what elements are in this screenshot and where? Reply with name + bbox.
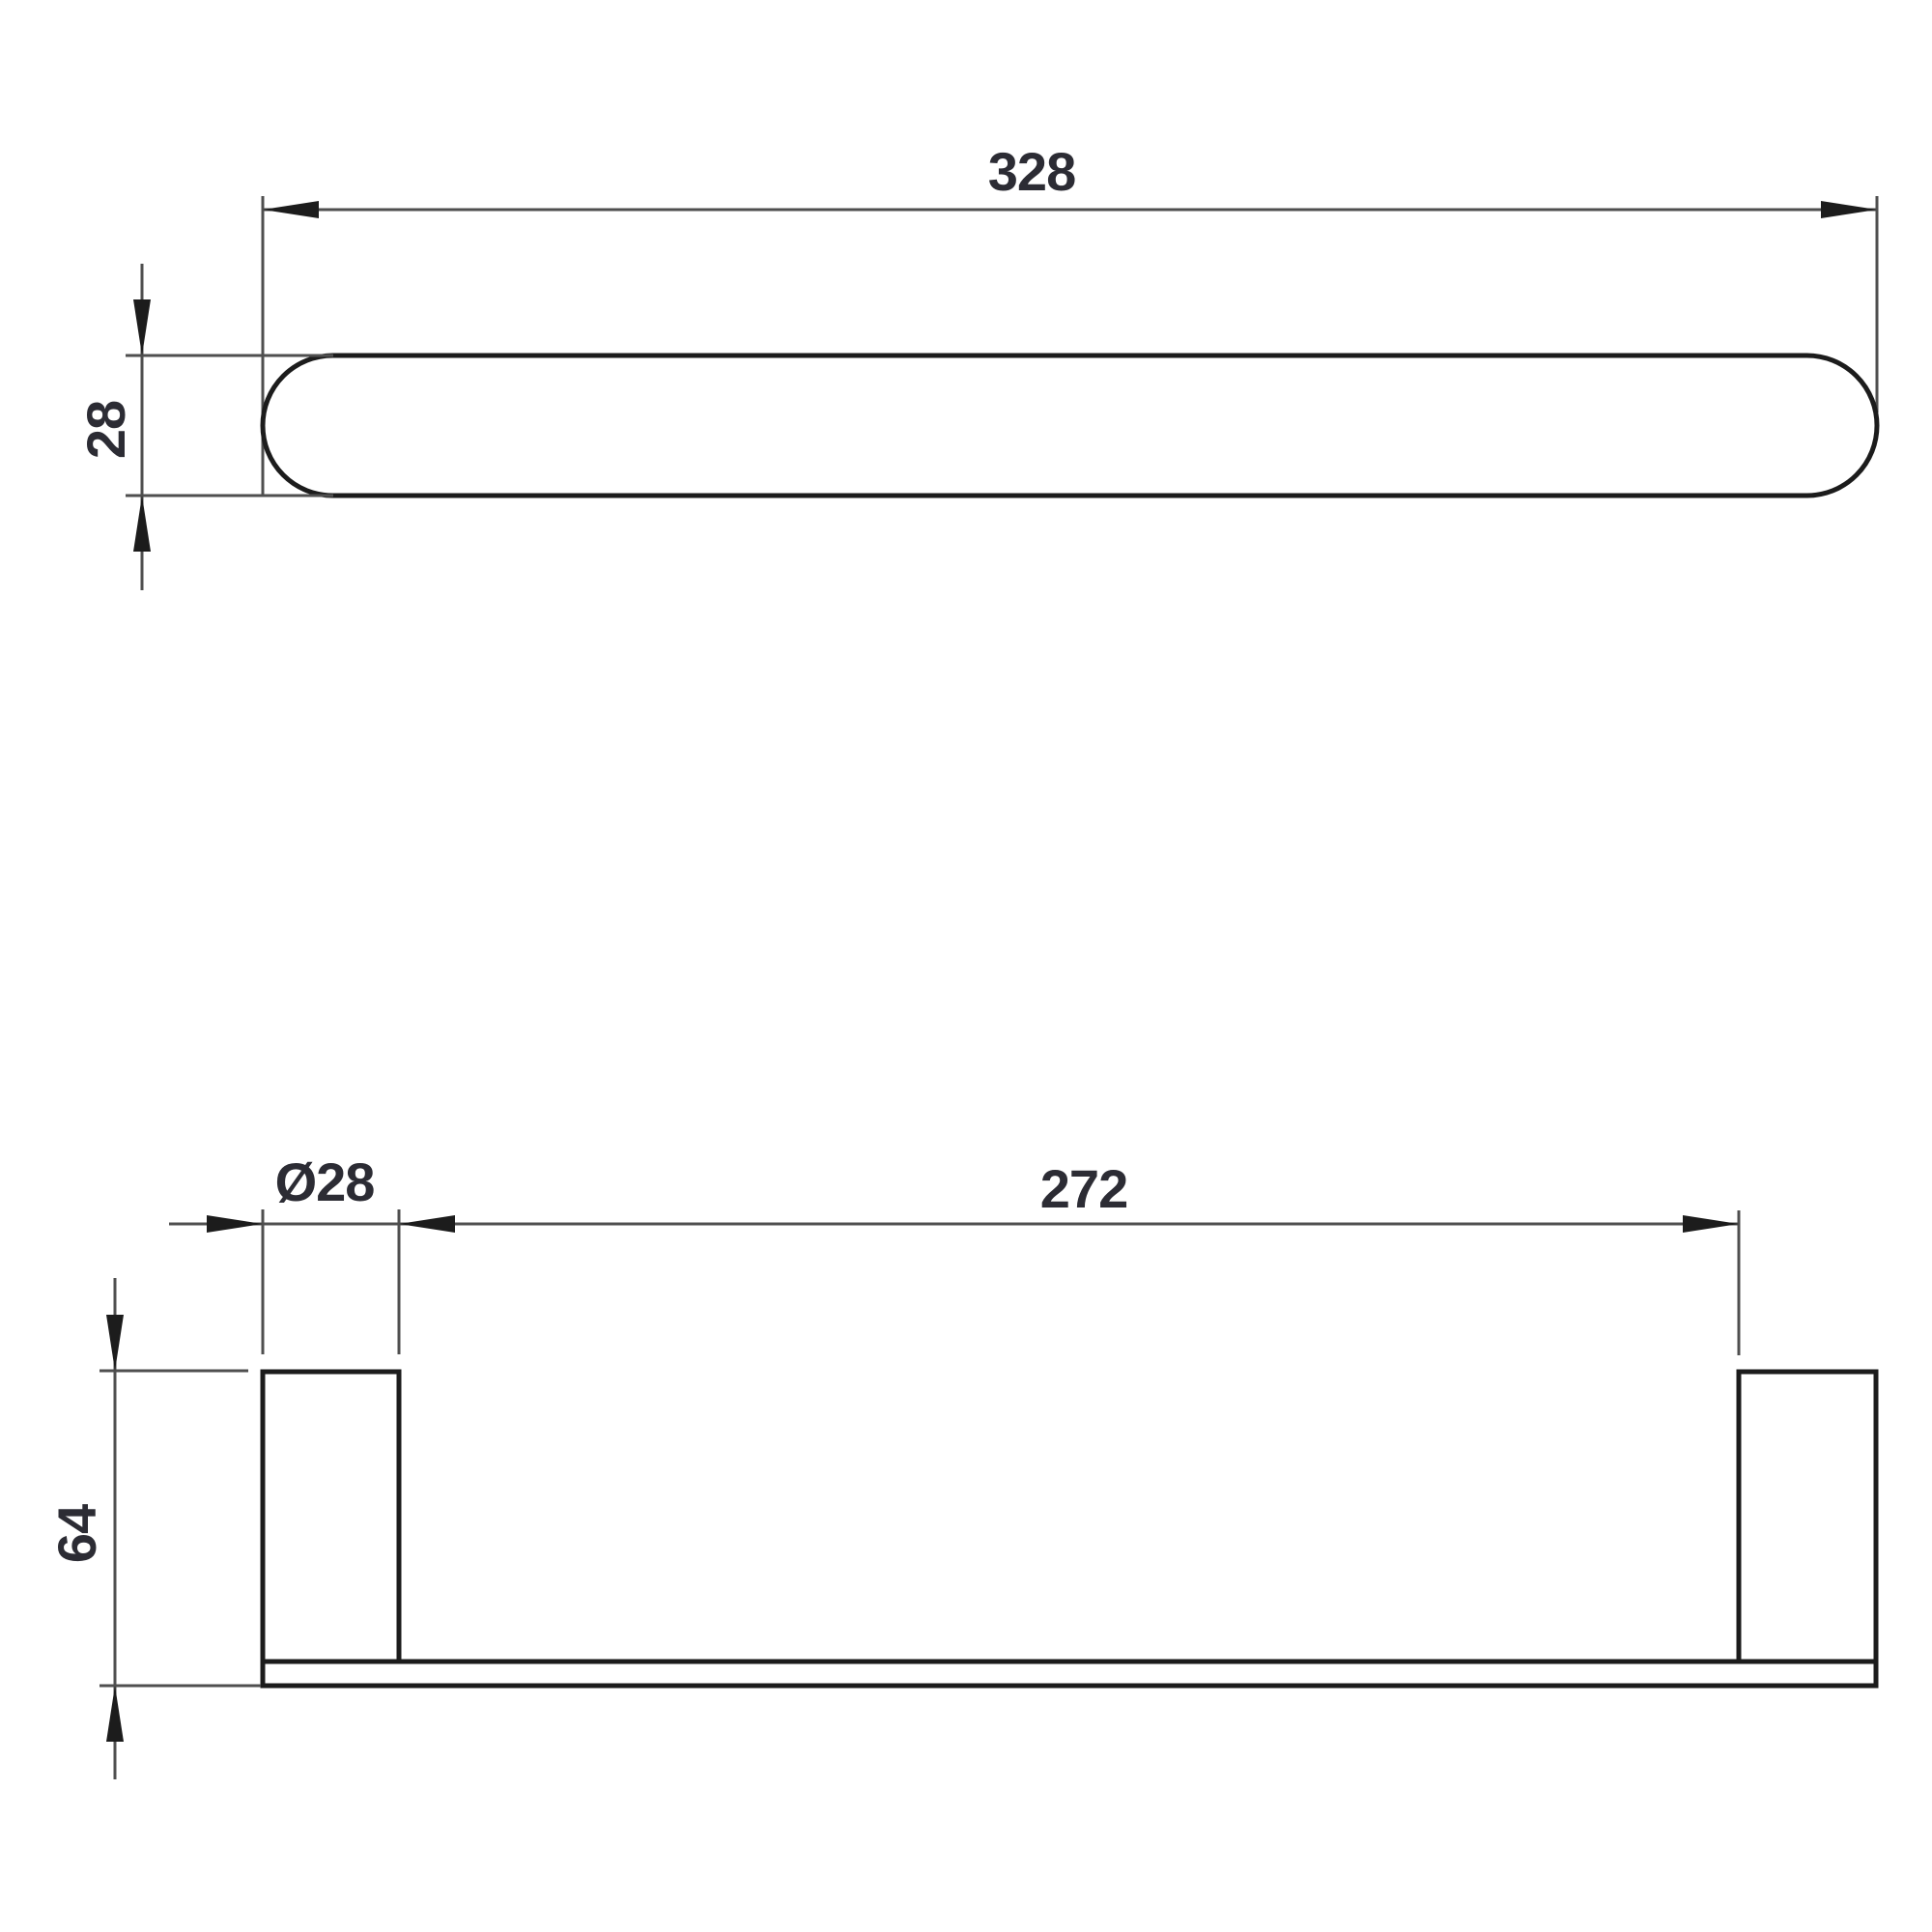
arrowhead-right-icon [1683, 1215, 1739, 1233]
dimension-label-bar-thickness: 28 [75, 401, 136, 459]
arrowhead-down-icon [106, 1315, 124, 1371]
arrowhead-right-icon [207, 1215, 263, 1233]
dimension-label-post-diameter: Ø28 [275, 1151, 375, 1212]
left-post-outline [263, 1372, 399, 1662]
dimension-label-overall-length: 328 [988, 141, 1075, 202]
arrowhead-up-icon [106, 1686, 124, 1742]
drawing-sheet: 328 28 Ø28 272 [0, 0, 1932, 1932]
front-view: Ø28 272 64 [46, 1151, 1876, 1779]
arrowhead-up-icon [133, 496, 151, 552]
technical-drawing: 328 28 Ø28 272 [0, 0, 1932, 1932]
arrowhead-left-icon [399, 1215, 455, 1233]
dimension-label-inner-span: 272 [1040, 1158, 1127, 1219]
arrowhead-down-icon [133, 299, 151, 355]
bar-outline [263, 355, 1877, 496]
arrowhead-left-icon [263, 201, 319, 218]
top-view: 328 28 [75, 141, 1877, 590]
base-plate-outline [263, 1662, 1876, 1686]
dimension-label-mount-height: 64 [46, 1504, 107, 1563]
right-post-outline [1739, 1372, 1876, 1662]
arrowhead-right-icon [1821, 201, 1877, 218]
